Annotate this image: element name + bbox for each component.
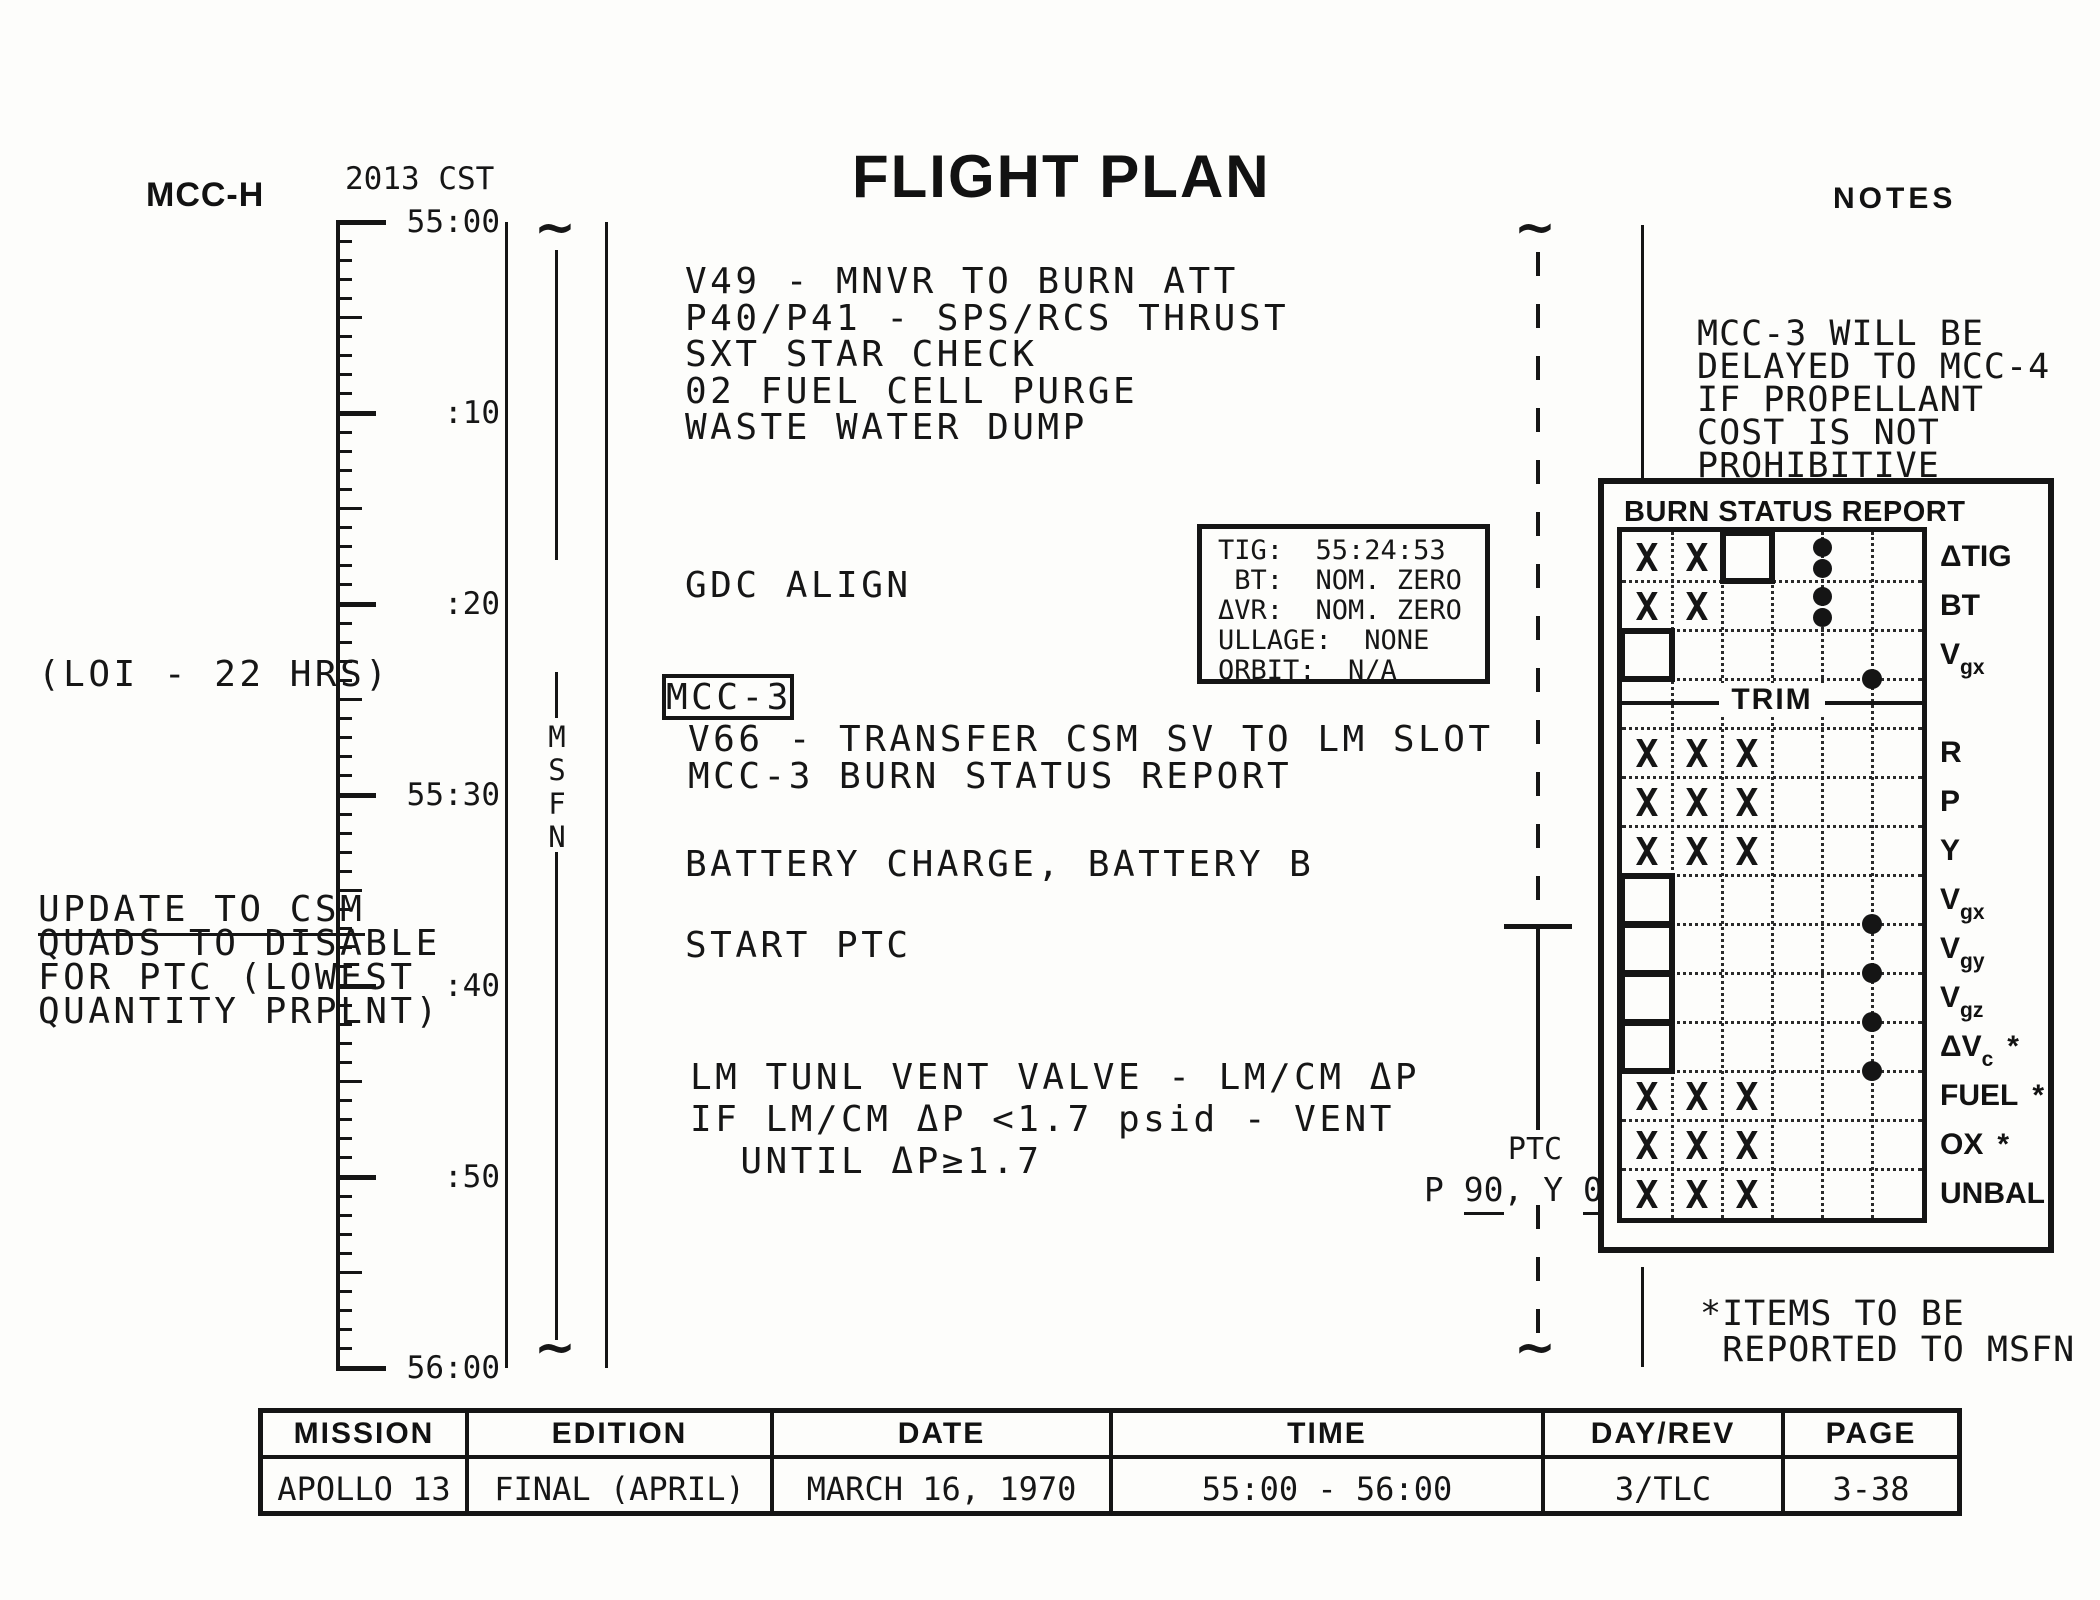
footer-header-cell: TIME [1113,1417,1541,1453]
msfn-rail-top [555,250,558,560]
burn-x-mark: X [1672,781,1722,825]
burn-x-mark: X [1722,1173,1772,1217]
report-to-msfn-star: * [1997,1128,2009,1161]
burn-row-label: Vgy [1940,932,1985,966]
burn-entry-box [1619,922,1675,976]
footnote-line: REPORTED TO MSFN [1700,1331,2075,1370]
mcc-h-label: MCC-H [146,176,264,215]
mcc3-event-label: MCC-3 [666,677,792,718]
activity-line: V49 - MNVR TO BURN ATT [685,262,1239,302]
burn-row-label-subscript: gy [1960,950,1985,973]
burn-x-mark: X [1622,585,1672,629]
tig-line: TIG: 55:24:53 [1218,536,1485,566]
activity-line: V66 - TRANSFER CSM SV TO LM SLOT [688,720,1494,760]
ptc-solid-segment [1536,924,1540,1130]
burn-x-mark: X [1672,1075,1722,1119]
time-label: 56:00 [340,1351,500,1385]
footer-header-rule [263,1455,1957,1459]
time-label: 55:00 [340,205,500,239]
burn-row-label: UNBAL [1940,1177,2045,1211]
event-line-break-top-icon: ~ [1514,198,1556,256]
burn-x-mark: X [1722,732,1772,776]
tig-line: ΔVR: NOM. ZERO [1218,596,1485,626]
activity-line: 02 FUEL CELL PURGE [685,372,1138,412]
tig-lines: TIG: 55:24:53 BT: NOM. ZEROΔVR: NOM. ZER… [1218,536,1485,686]
trim-divider-label: TRIM [1719,683,1824,716]
burn-entry-box [1619,1020,1675,1074]
burn-x-mark: X [1622,732,1672,776]
ptc-attitude-value: 90 [1464,1170,1504,1215]
msfn-letter: M [542,720,572,754]
ptc-attitude: P 90, Y 0 [1424,1170,1603,1209]
burn-dot [1813,608,1832,627]
msfn-rail-mid [555,672,558,718]
burn-status-title: BURN STATUS REPORT [1624,496,1965,529]
burn-dot [1862,963,1882,983]
footer-header-cell: PAGE [1785,1417,1957,1453]
msfn-rail-bottom [555,852,558,1340]
burn-x-mark: X [1622,1075,1672,1119]
burn-x-mark: X [1672,1124,1722,1168]
burn-row-label: OX* [1940,1128,2009,1162]
update-note-line: QUANTITY PRPLNT) [38,992,441,1032]
report-to-msfn-star: * [2032,1079,2044,1112]
footer-value-cell: 3/TLC [1545,1469,1781,1509]
burn-dot [1813,559,1832,578]
footer-header-cell: DATE [774,1417,1109,1453]
trim-divider: TRIM [1622,683,1922,717]
grid-line-horizontal [1622,825,1922,828]
burn-dot [1862,669,1882,689]
event-line-break-bottom-icon: ~ [1514,1318,1556,1376]
burn-x-mark: X [1622,1173,1672,1217]
burn-row-label: Vgx [1940,883,1985,917]
activity-line: IF LM/CM ΔP <1.7 psid - VENT [690,1100,1395,1140]
burn-dot [1862,1061,1882,1081]
burn-dot [1862,914,1882,934]
footer-value-cell: 3-38 [1785,1469,1957,1509]
burn-x-mark: X [1622,1124,1672,1168]
activity-line: SXT STAR CHECK [685,335,1037,375]
burn-row-label: ΔVc* [1940,1030,2019,1064]
burn-row-label: FUEL* [1940,1079,2044,1113]
burn-dot [1813,538,1832,557]
activity-battery-charge: BATTERY CHARGE, BATTERY B [685,845,1314,885]
burn-x-mark: X [1622,536,1672,580]
msfn-rail-break-top-icon: ~ [534,198,576,256]
activity-start-ptc: START PTC [685,926,912,966]
burn-status-grid: XXΔTIGXXBTVgxTRIMXXXRXXXPXXXYVgxVgyVgzΔV… [1617,527,1927,1223]
report-to-msfn-star: * [2007,1030,2019,1063]
burn-x-mark: X [1672,585,1722,629]
activity-line: LM TUNL VENT VALVE - LM/CM ΔP [690,1058,1420,1098]
notes-divider-top [1641,225,1644,478]
burn-row-label: Vgx [1940,638,1985,672]
mcc3-event-box: MCC-3 [662,674,794,720]
burn-x-mark: X [1672,1173,1722,1217]
burn-x-mark: X [1722,781,1772,825]
notes-header: NOTES [1833,182,1956,216]
tig-line: BT: NOM. ZERO [1218,566,1485,596]
burn-entry-box [1619,971,1675,1025]
footer-header-cell: MISSION [263,1417,465,1453]
activity-line: P40/P41 - SPS/RCS THRUST [685,299,1289,339]
cst-time-label: 2013 CST [345,162,494,196]
burn-row-label-subscript: gx [1960,901,1985,924]
msfn-letter: F [542,787,572,821]
time-label: 55:30 [340,778,500,812]
footer-value-cell: FINAL (APRIL) [469,1469,770,1509]
grid-line-horizontal [1622,1168,1922,1171]
footer-value-cell: MARCH 16, 1970 [774,1469,1109,1509]
burn-dot [1862,1012,1882,1032]
activity-line: MCC-3 BURN STATUS REPORT [688,757,1292,797]
notes-divider-bottom [1641,1267,1644,1367]
loi-note: (LOI - 22 HRS) [38,655,390,695]
activity-line: UNTIL ΔP≥1.7 [690,1142,1042,1182]
tig-data-box: TIG: 55:24:53 BT: NOM. ZEROΔVR: NOM. ZER… [1197,524,1490,684]
burn-entry-box [1720,530,1775,584]
ptc-attitude-text: P [1424,1170,1464,1209]
footer-value-cell: 55:00 - 56:00 [1113,1469,1541,1509]
ptc-attitude-text: , Y [1504,1170,1583,1209]
burn-x-mark: X [1622,830,1672,874]
burn-entry-box [1619,873,1675,927]
burn-row-label: BT [1940,589,1980,623]
flight-plan-page: MCC-H 2013 CST FLIGHT PLAN NOTES 55:00:1… [0,0,2100,1600]
burn-x-mark: X [1672,830,1722,874]
burn-entry-box [1619,628,1675,682]
grid-line-horizontal [1622,776,1922,779]
time-label: :20 [340,587,500,621]
activity-gdc-align: GDC ALIGN [685,566,912,606]
msfn-letter: N [542,820,572,854]
time-label: :10 [340,396,500,430]
grid-line-horizontal [1622,727,1922,730]
msfn-rail-break-bottom-icon: ~ [534,1318,576,1376]
event-line-dashed-top [1536,252,1540,922]
burn-row-label: Y [1940,834,1960,868]
burn-x-mark: X [1672,536,1722,580]
grid-line-horizontal [1622,1119,1922,1122]
footer-header-cell: DAY/REV [1545,1417,1781,1453]
ptc-label: PTC [1487,1132,1583,1167]
page-title: FLIGHT PLAN [852,142,1271,211]
burn-x-mark: X [1722,830,1772,874]
burn-dot [1813,587,1832,606]
burn-row-label-subscript: gz [1960,999,1983,1022]
burn-x-mark: X [1722,1124,1772,1168]
footer-header-cell: EDITION [469,1417,770,1453]
time-label: :50 [340,1160,500,1194]
rail-right [605,222,608,1368]
activity-line: WASTE WATER DUMP [685,408,1088,448]
burn-row-label-subscript: c [1982,1048,1994,1071]
footnote-line: *ITEMS TO BE [1700,1295,1965,1334]
burn-row-label: ΔTIG [1940,540,2012,574]
burn-x-mark: X [1672,732,1722,776]
tig-line: ULLAGE: NONE [1218,626,1485,656]
msfn-letter: S [542,753,572,787]
footer-value-cell: APOLLO 13 [263,1469,465,1509]
burn-row-label-subscript: gx [1960,656,1985,679]
burn-row-label: P [1940,785,1960,819]
burn-x-mark: X [1722,1075,1772,1119]
tig-line: ORBIT: N/A [1218,656,1485,686]
footer-table: MISSIONAPOLLO 13EDITIONFINAL (APRIL)DATE… [258,1408,1962,1516]
burn-x-mark: X [1622,781,1672,825]
burn-row-label: Vgz [1940,981,1983,1015]
rail-left [505,222,508,1368]
burn-row-label: R [1940,736,1962,770]
